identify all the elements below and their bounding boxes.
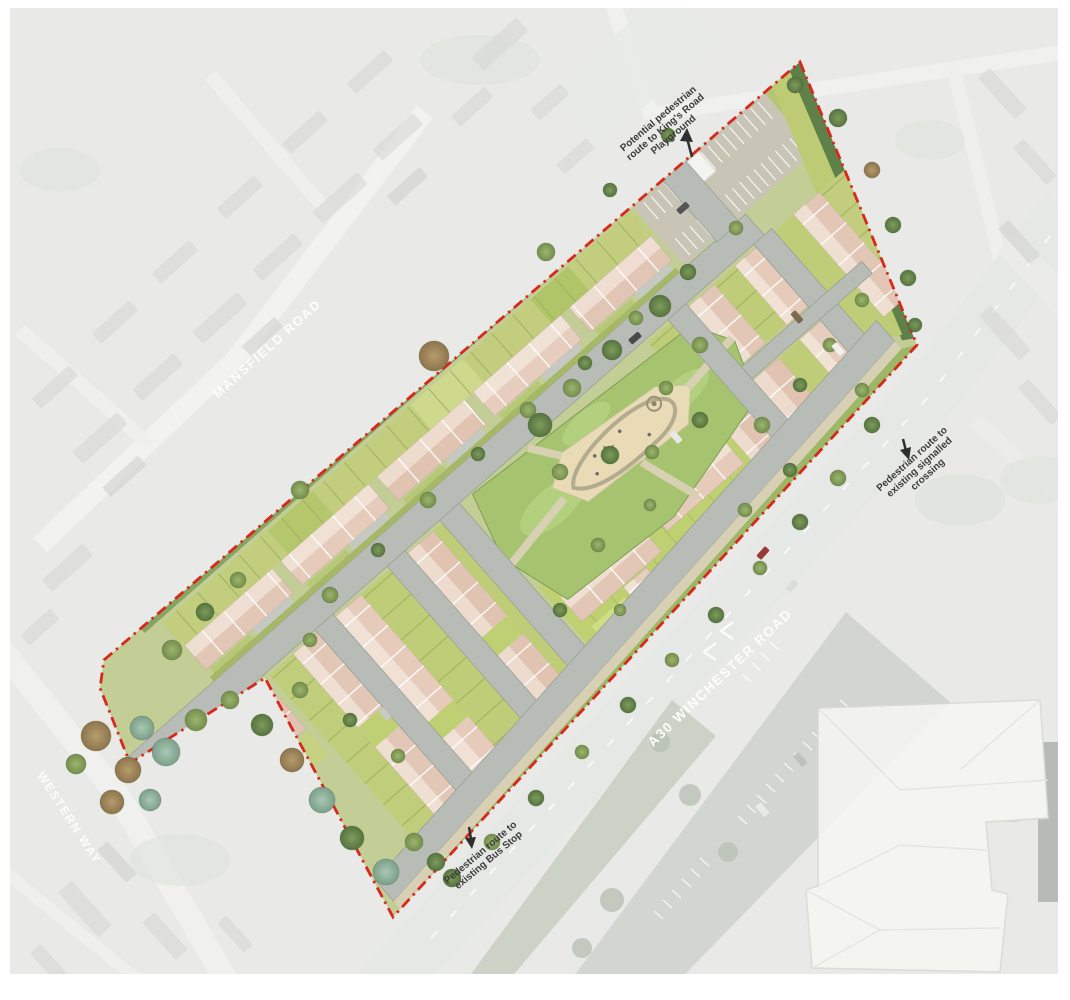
masterplan-svg: MANSFIELD ROAD A30 WINCHESTER ROAD WESTE… (0, 0, 1070, 1000)
site-plan-map: MANSFIELD ROAD A30 WINCHESTER ROAD WESTE… (0, 0, 1070, 1000)
